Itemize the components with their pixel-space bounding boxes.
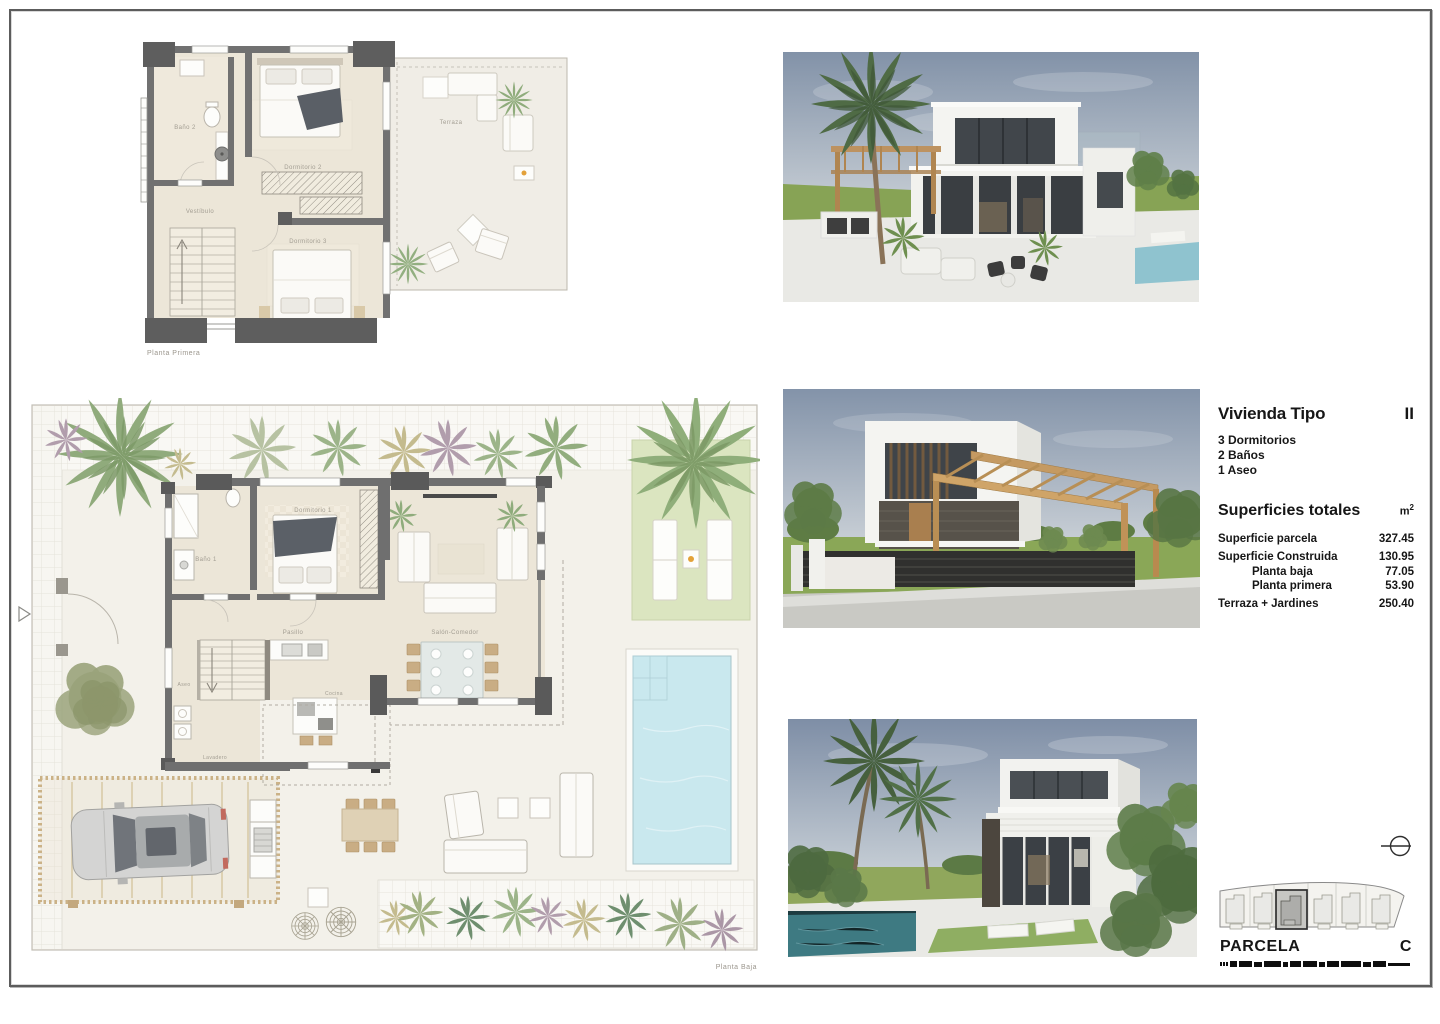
- render-exterior-garden-view: [788, 719, 1197, 962]
- north-compass-icon: [1380, 834, 1414, 858]
- pool: [626, 649, 738, 871]
- carport: [40, 778, 278, 908]
- outdoor-kitchen: [250, 800, 276, 878]
- room-label-dormitorio2: Dormitorio 2: [284, 165, 322, 171]
- highlighted-plot: [1276, 890, 1307, 929]
- planta-baja-drawing: Baño 1 Dormitorio 1 Pasillo Salón-Comedo…: [28, 398, 760, 974]
- parcela-panel: PARCELA C: [1218, 828, 1414, 980]
- room-label-terraza: Terraza: [440, 120, 463, 126]
- room-label-cocina: Cocina: [325, 691, 343, 697]
- surface-row-terraza-jardines: Terraza + Jardines250.40: [1218, 597, 1414, 611]
- render-exterior-pool-view: [783, 52, 1199, 307]
- room-label-bano1: Baño 1: [195, 557, 217, 563]
- surface-row-parcela: Superficie parcela327.45: [1218, 532, 1414, 546]
- watermark-redacted: [1220, 960, 1410, 969]
- outdoor-dining-set: [342, 799, 398, 852]
- info-panel: Vivienda Tipo II 3 Dormitorios 2 Baños 1…: [1218, 404, 1414, 611]
- villa-type-title: Vivienda Tipo: [1218, 404, 1325, 424]
- totals-heading: Superficies totales: [1218, 502, 1360, 520]
- plan-caption-primera: Planta Primera: [147, 350, 200, 357]
- surface-row-planta-baja: Planta baja77.05: [1218, 565, 1414, 579]
- room-label-vestibulo: Vestíbulo: [186, 209, 215, 215]
- stairs: [170, 228, 235, 316]
- surface-row-construida: Superficie Construida130.95: [1218, 550, 1414, 564]
- bed-dormitorio-3: [259, 250, 365, 326]
- bed-dormitorio-2: [257, 58, 343, 137]
- room-label-dormitorio3: Dormitorio 3: [289, 239, 327, 245]
- parcela-code: C: [1400, 938, 1412, 956]
- floorplan-planta-primera: Terraza: [140, 36, 572, 366]
- feature-bathrooms: 2 Baños: [1218, 448, 1414, 463]
- room-label-pasillo: Pasillo: [283, 630, 304, 636]
- room-label-lavadero: Lavadero: [203, 755, 227, 761]
- room-label-aseo: Aseo: [178, 682, 191, 688]
- balcony-railing: [141, 98, 147, 202]
- swimming-pool: [788, 911, 916, 957]
- room-label-salon-comedor: Salón-Comedor: [431, 630, 478, 636]
- stairs-down: [200, 640, 265, 700]
- brochure-page: Terraza: [0, 0, 1440, 1024]
- entrance-marker-icon: [17, 605, 33, 623]
- villa-type-code: II: [1405, 404, 1414, 424]
- terrace-area: Terraza: [388, 58, 567, 290]
- rattan-pouf: [326, 907, 355, 936]
- parcela-label: PARCELA: [1220, 938, 1300, 956]
- rattan-pouf: [292, 913, 319, 940]
- outdoor-cube-stool: [308, 888, 328, 907]
- upper-floor-rooms: [150, 50, 390, 326]
- feature-list: 3 Dormitorios 2 Baños 1 Aseo: [1218, 433, 1414, 478]
- plan-caption-baja: Planta Baja: [716, 964, 757, 971]
- siteplan-diagram: [1218, 877, 1408, 933]
- render-exterior-street-view: [783, 389, 1200, 633]
- floorplan-planta-baja: Baño 1 Dormitorio 1 Pasillo Salón-Comedo…: [28, 398, 760, 979]
- room-label-dormitorio1: Dormitorio 1: [294, 508, 332, 514]
- unit-m2: m2: [1400, 503, 1414, 518]
- feature-bedrooms: 3 Dormitorios: [1218, 433, 1414, 448]
- car: [70, 798, 229, 887]
- surface-row-planta-primera: Planta primera53.90: [1218, 579, 1414, 593]
- planta-primera-drawing: Terraza: [140, 36, 572, 361]
- dormitorio1-furniture: [265, 505, 349, 598]
- villa-building: [865, 421, 1041, 549]
- room-label-bano2: Baño 2: [174, 125, 196, 131]
- feature-toilets: 1 Aseo: [1218, 463, 1414, 478]
